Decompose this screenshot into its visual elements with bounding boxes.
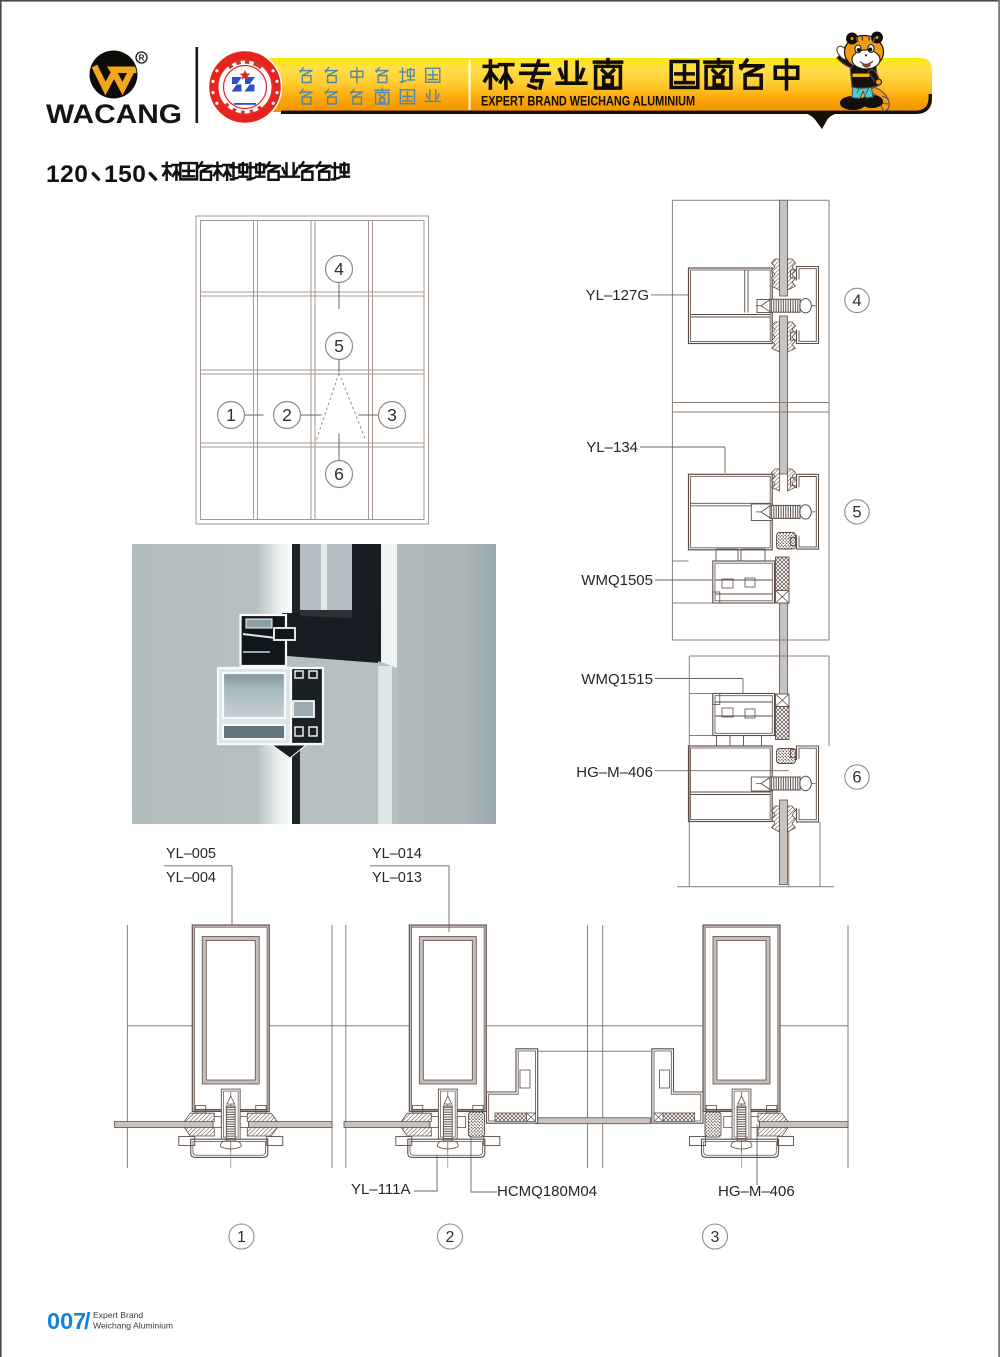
svg-text:4: 4 (334, 259, 344, 279)
svg-text:YL–005: YL–005 (166, 846, 216, 862)
svg-text:HG–M–406: HG–M–406 (576, 764, 653, 781)
svg-text:YL–013: YL–013 (372, 870, 422, 886)
svg-text:2: 2 (282, 405, 292, 425)
svg-text:YL–004: YL–004 (166, 870, 216, 886)
svg-text:HCMQ180M04: HCMQ180M04 (497, 1183, 597, 1200)
svg-text:007: 007 (47, 1308, 86, 1334)
svg-text:3: 3 (387, 405, 397, 425)
svg-text:1: 1 (237, 1229, 246, 1246)
svg-text:3: 3 (711, 1229, 720, 1246)
svg-text:6: 6 (852, 769, 861, 787)
svg-text:HG–M–406: HG–M–406 (718, 1183, 795, 1200)
svg-text:WMQ1505: WMQ1505 (581, 572, 653, 589)
svg-text:R: R (139, 54, 145, 63)
svg-text:5: 5 (334, 336, 344, 356)
svg-text:YL–134: YL–134 (586, 439, 638, 456)
svg-text:6: 6 (334, 464, 344, 484)
svg-text:5: 5 (852, 504, 861, 522)
svg-text:EXPERT BRAND WEICHANG ALUMINIU: EXPERT BRAND WEICHANG ALUMINIUM (481, 94, 695, 110)
svg-text:/: / (84, 1308, 91, 1334)
svg-text:YL–014: YL–014 (372, 846, 422, 862)
svg-text:Weichang Aluminium: Weichang Aluminium (93, 1321, 173, 1331)
svg-text:120: 120 (46, 161, 88, 188)
svg-text:4: 4 (852, 292, 861, 310)
svg-text:1: 1 (226, 405, 236, 425)
svg-text:WMQ1515: WMQ1515 (581, 671, 653, 688)
svg-text:YL–111A: YL–111A (351, 1181, 411, 1198)
svg-text:2: 2 (446, 1229, 455, 1246)
svg-text:Expert Brand: Expert Brand (93, 1310, 143, 1320)
svg-text:YL–127G: YL–127G (586, 287, 649, 304)
svg-text:150: 150 (104, 161, 146, 188)
svg-text:WACANG: WACANG (46, 99, 182, 129)
